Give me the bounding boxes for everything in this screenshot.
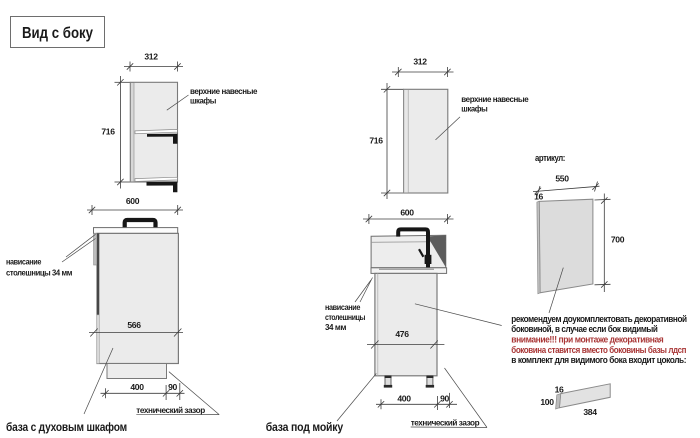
- svg-text:90: 90: [168, 382, 177, 392]
- svg-text:нависание: нависание: [6, 257, 42, 267]
- svg-text:600: 600: [400, 208, 414, 218]
- svg-text:верхние навесные: верхние навесные: [461, 94, 529, 104]
- svg-text:600: 600: [126, 196, 140, 206]
- svg-text:шкафы: шкафы: [190, 96, 216, 106]
- svg-text:100: 100: [540, 397, 554, 407]
- svg-text:384: 384: [583, 407, 597, 417]
- svg-text:столешницы 34 мм: столешницы 34 мм: [6, 268, 72, 278]
- svg-text:312: 312: [413, 57, 427, 67]
- svg-text:боковиной, в случае если бок в: боковиной, в случае если бок видимый: [511, 324, 657, 334]
- svg-text:артикул:: артикул:: [535, 153, 565, 163]
- svg-text:база под мойку: база под мойку: [266, 422, 344, 434]
- svg-text:Вид с боку: Вид с боку: [22, 25, 93, 42]
- svg-text:550: 550: [555, 174, 569, 184]
- svg-text:716: 716: [369, 136, 383, 146]
- svg-text:16: 16: [534, 192, 543, 202]
- svg-text:шкафы: шкафы: [461, 104, 487, 114]
- svg-text:внимание!!! при монтаже декора: внимание!!! при монтаже декоративная: [511, 335, 663, 345]
- svg-text:верхние навесные: верхние навесные: [190, 86, 258, 96]
- svg-text:476: 476: [395, 329, 409, 339]
- svg-text:в комплект для видимого бока в: в комплект для видимого бока входит цоко…: [511, 355, 686, 365]
- svg-text:700: 700: [611, 234, 625, 244]
- svg-text:технический зазор: технический зазор: [411, 418, 480, 428]
- svg-text:34 мм: 34 мм: [325, 322, 346, 332]
- svg-text:716: 716: [101, 127, 115, 137]
- svg-text:столешницы: столешницы: [325, 312, 365, 322]
- svg-text:566: 566: [127, 320, 141, 330]
- svg-text:90: 90: [440, 394, 449, 404]
- svg-text:400: 400: [130, 382, 144, 392]
- svg-text:боковина ставится вместо боков: боковина ставится вместо боковины базы л…: [511, 345, 686, 355]
- svg-text:рекомендуем доукомплектовать д: рекомендуем доукомплектовать декоративно…: [511, 314, 686, 324]
- svg-text:312: 312: [144, 52, 158, 62]
- svg-text:400: 400: [397, 394, 411, 404]
- svg-text:база с духовым шкафом: база с духовым шкафом: [6, 422, 127, 434]
- svg-text:технический зазор: технический зазор: [136, 405, 205, 415]
- svg-text:нависание: нависание: [325, 302, 361, 312]
